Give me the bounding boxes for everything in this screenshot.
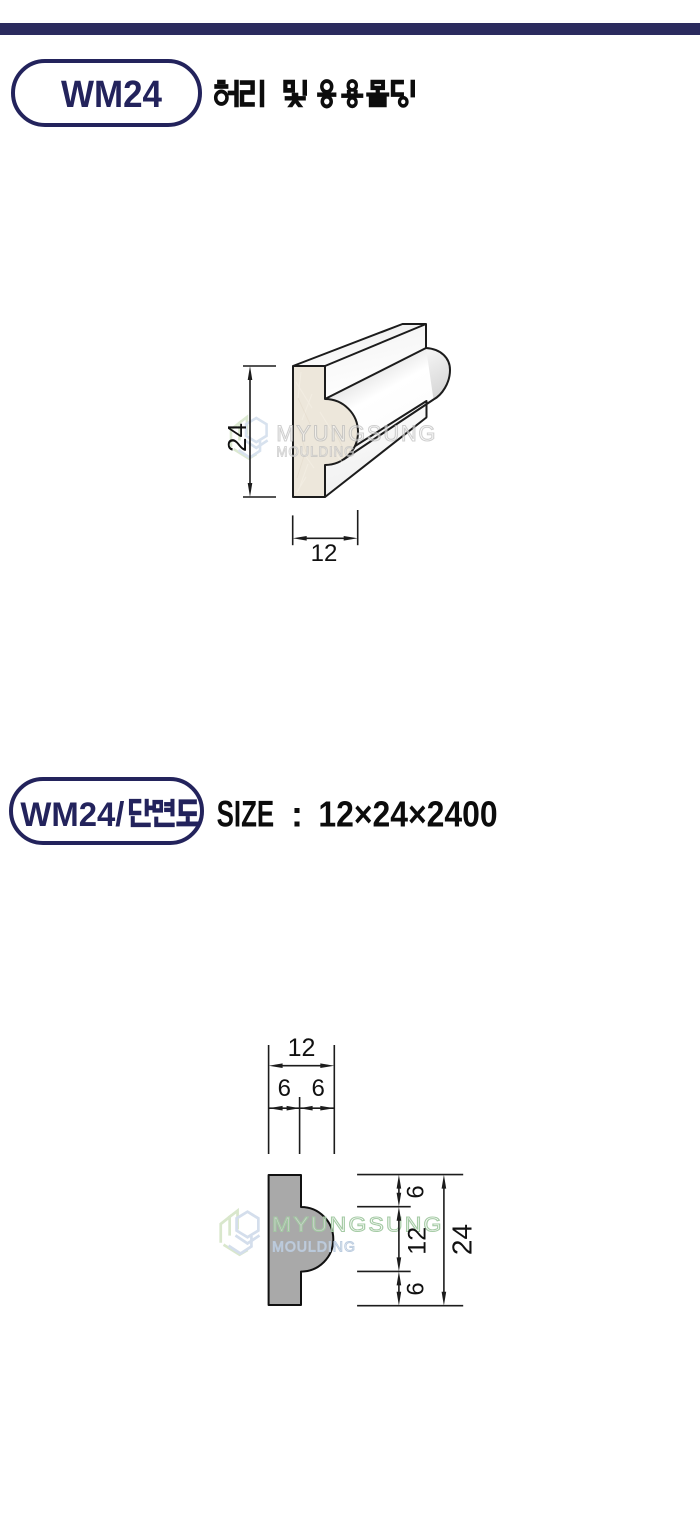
svg-text:MOULDING: MOULDING bbox=[272, 1239, 356, 1256]
svg-text:6: 6 bbox=[312, 1075, 325, 1102]
svg-text:6: 6 bbox=[403, 1185, 430, 1198]
svg-text:6: 6 bbox=[278, 1075, 291, 1102]
svg-text:12×24×2400: 12×24×2400 bbox=[318, 794, 497, 835]
svg-text::: : bbox=[291, 794, 303, 835]
svg-text:MOULDING: MOULDING bbox=[276, 443, 355, 460]
svg-text:12: 12 bbox=[288, 1034, 316, 1062]
svg-text:6: 6 bbox=[403, 1282, 430, 1295]
svg-text:SIZE: SIZE bbox=[217, 794, 275, 835]
svg-text:WM24: WM24 bbox=[61, 74, 162, 116]
svg-text:WM24/: WM24/ bbox=[20, 796, 125, 834]
svg-text:12: 12 bbox=[311, 540, 338, 567]
svg-text:12: 12 bbox=[404, 1227, 432, 1255]
svg-text:MYUNGSUNG: MYUNGSUNG bbox=[276, 421, 437, 446]
svg-text:24: 24 bbox=[222, 423, 252, 452]
svg-text:24: 24 bbox=[447, 1224, 478, 1255]
